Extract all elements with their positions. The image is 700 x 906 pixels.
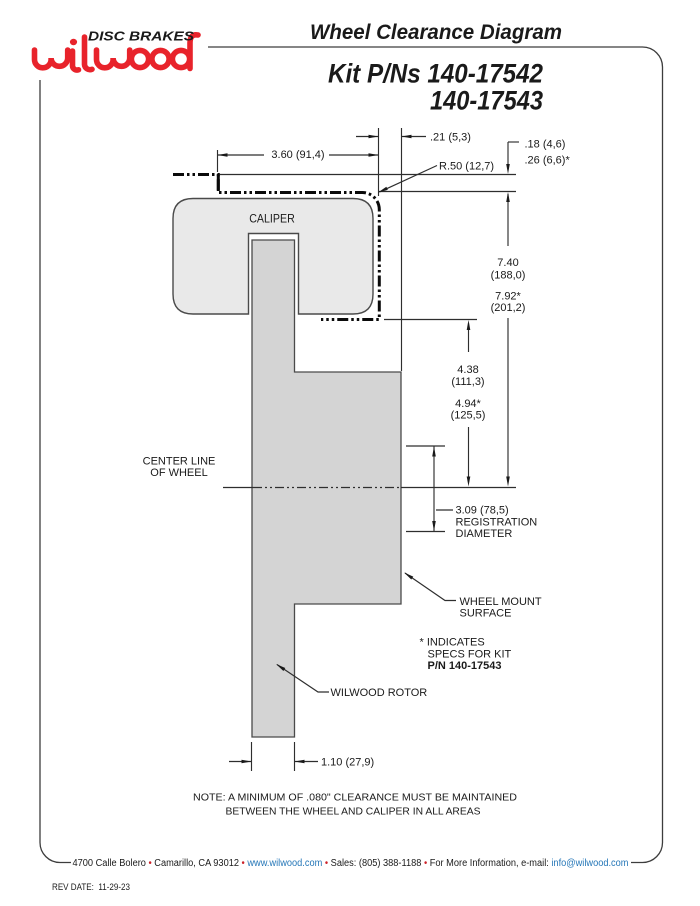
svg-text:P/N 140-17543: P/N 140-17543: [428, 660, 502, 672]
svg-text:7.40: 7.40: [497, 257, 518, 269]
svg-text:(201,2): (201,2): [491, 302, 526, 314]
svg-text:WILWOOD ROTOR: WILWOOD ROTOR: [331, 687, 428, 699]
svg-text:SPECS FOR KIT: SPECS FOR KIT: [428, 649, 512, 661]
svg-text:REGISTRATION: REGISTRATION: [456, 517, 538, 529]
svg-text:DISC BRAKES: DISC BRAKES: [88, 30, 195, 44]
svg-text:OF WHEEL: OF WHEEL: [150, 467, 207, 479]
svg-text:(125,5): (125,5): [451, 410, 486, 422]
svg-text:CALIPER: CALIPER: [249, 214, 295, 226]
svg-text:SURFACE: SURFACE: [460, 608, 512, 620]
svg-text:7.92*: 7.92*: [495, 291, 521, 303]
svg-text:REV DATE: 11-29-23: REV DATE: 11-29-23: [52, 882, 130, 892]
svg-text:* INDICATES: * INDICATES: [420, 637, 485, 649]
svg-text:(188,0): (188,0): [491, 270, 526, 282]
svg-text:Kit P/Ns 140-17542: Kit P/Ns 140-17542: [328, 59, 543, 89]
svg-text:.18 (4,6): .18 (4,6): [525, 139, 566, 151]
svg-text:WHEEL MOUNT: WHEEL MOUNT: [460, 596, 542, 608]
svg-text:4700 Calle Bolero • Camarillo,: 4700 Calle Bolero • Camarillo, CA 93012 …: [73, 858, 629, 869]
svg-text:1.10 (27,9): 1.10 (27,9): [321, 757, 374, 769]
svg-text:NOTE: A MINIMUM OF .080" CLEAR: NOTE: A MINIMUM OF .080" CLEARANCE MUST …: [193, 792, 517, 804]
svg-text:DIAMETER: DIAMETER: [456, 528, 513, 540]
svg-text:4.94*: 4.94*: [455, 398, 481, 410]
svg-text:3.09 (78,5): 3.09 (78,5): [456, 505, 509, 517]
svg-text:(111,3): (111,3): [451, 376, 484, 388]
svg-text:3.60 (91,4): 3.60 (91,4): [271, 149, 324, 161]
svg-text:140-17543: 140-17543: [430, 86, 543, 116]
svg-text:R.50 (12,7): R.50 (12,7): [439, 161, 494, 173]
svg-text:BETWEEN THE WHEEL AND CALIPER: BETWEEN THE WHEEL AND CALIPER IN ALL ARE…: [226, 806, 481, 818]
svg-text:CENTER LINE: CENTER LINE: [143, 456, 216, 468]
svg-text:.26 (6,6)*: .26 (6,6)*: [525, 155, 571, 167]
svg-text:.21 (5,3): .21 (5,3): [430, 132, 471, 144]
svg-text:Wheel Clearance Diagram: Wheel Clearance Diagram: [310, 20, 562, 44]
svg-text:4.38: 4.38: [457, 364, 478, 376]
